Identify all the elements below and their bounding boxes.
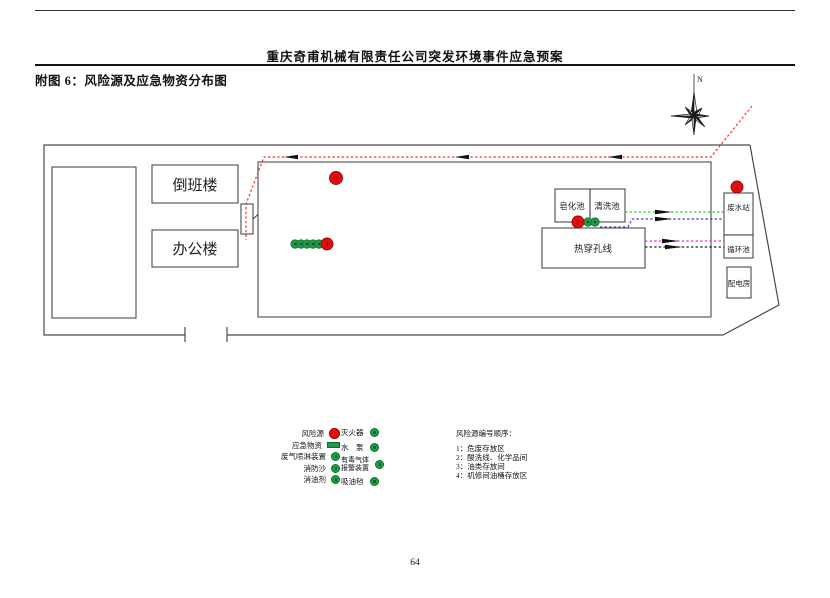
legend-label: 消防沙 xyxy=(304,463,327,474)
fire-sand-marker-icon xyxy=(331,464,340,473)
legend-item: 风险源 xyxy=(262,429,340,438)
risk-dot-number: 2 xyxy=(576,220,579,227)
legend-item: 有毒气体 报警装置 xyxy=(341,456,384,472)
extinguisher-marker-icon xyxy=(370,428,379,437)
risk-source-marker-icon xyxy=(329,428,340,439)
risk-list-item: 4：机修间油桶存放区 xyxy=(456,471,527,480)
supply-dot-mark xyxy=(300,243,303,246)
risk-dot-number: 1 xyxy=(334,176,337,183)
supply-dot-mark xyxy=(312,243,315,246)
legend-label-line1: 有毒气体 xyxy=(341,456,369,464)
legend-label: 应急物资 xyxy=(292,440,322,451)
legend-label: 吸油毡 xyxy=(341,476,364,487)
document-page: 重庆奇甫机械有限责任公司突发环境事件应急预案 附图 6：风险源及应急物资分布图 … xyxy=(0,0,830,598)
hot-piercing-line-label: 热穿孔线 xyxy=(574,243,613,255)
route-arrow-left-2 xyxy=(455,155,469,160)
supply-dot-row xyxy=(291,240,323,248)
legend-label: 水 泵 xyxy=(341,442,364,453)
legend-left-column: 风险源 应急物资 废气喷淋装置 消防沙 消油剂 xyxy=(262,429,340,487)
spray-device-marker-icon xyxy=(331,452,340,461)
emergency-supply-marker-icon xyxy=(327,442,340,448)
oil-felt-marker-icon xyxy=(370,477,379,486)
shift-building-label: 倒班楼 xyxy=(172,177,217,194)
legend-label: 风险源 xyxy=(302,428,325,439)
legend-right-column: 灭火器 水 泵 有毒气体 报警装置 吸油毡 xyxy=(341,427,384,490)
supply-dot-mark xyxy=(294,243,297,246)
legend-label-line2: 报警装置 xyxy=(341,464,369,472)
saponification-pool-label: 皂化池 xyxy=(559,201,585,211)
wastewater-station-box xyxy=(724,193,753,235)
gas-alarm-marker-icon xyxy=(375,460,384,469)
route-arrow-left-1 xyxy=(284,155,298,160)
risk-dot-number: 3 xyxy=(325,242,328,249)
office-building-label: 办公楼 xyxy=(172,241,217,258)
legend-item: 废气喷淋装置 xyxy=(262,452,340,461)
cleaning-pool-label: 清洗池 xyxy=(594,201,620,211)
legend-item: 消防沙 xyxy=(262,464,340,473)
oil-dispersant-marker-icon xyxy=(331,475,340,484)
legend-label: 灭火器 xyxy=(341,427,364,438)
supply-dot-mark xyxy=(587,221,590,224)
circulation-pool-label: 循环池 xyxy=(727,244,750,254)
left-building xyxy=(52,167,136,318)
site-plan-diagram: 倒班楼 办公楼 生化池 皂化池 清洗池 热穿孔线 废水站 循环池 配电房 xyxy=(0,0,830,598)
supply-dot-mark xyxy=(306,243,309,246)
legend-item: 吸油毡 xyxy=(341,476,384,487)
legend-item: 应急物资 xyxy=(262,441,340,450)
legend-label: 有毒气体 报警装置 xyxy=(341,456,369,472)
risk-list-item: 1：危废存放区 xyxy=(456,444,527,453)
risk-list-title: 风险源编号顺序： xyxy=(456,429,527,438)
compass-rose: N xyxy=(671,74,709,135)
page-number: 64 xyxy=(0,558,830,568)
route-arrow-left-3 xyxy=(608,155,622,160)
legend-item: 灭火器 xyxy=(341,427,384,438)
risk-list-item: 3：油类存放间 xyxy=(456,462,527,471)
compass-north-label: N xyxy=(697,75,703,84)
legend-label: 废气喷淋装置 xyxy=(281,451,326,462)
wastewater-station-label: 废水站 xyxy=(727,202,750,212)
supply-dot-pair xyxy=(584,218,599,226)
legend-item: 水 泵 xyxy=(341,442,384,453)
risk-source-numbering: 风险源编号顺序： 1：危废存放区 2：酸洗线、化学品间 3：油类存放间 4：机修… xyxy=(456,429,527,480)
supply-dot-mark xyxy=(594,221,597,224)
biochemical-pool-box xyxy=(241,204,253,234)
legend-item: 消油剂 xyxy=(262,475,340,484)
risk-list-item: 2：酸洗线、化学品间 xyxy=(456,453,527,462)
water-pump-marker-icon xyxy=(370,443,379,452)
legend-label: 消油剂 xyxy=(304,474,327,485)
supply-dot-mark xyxy=(318,243,321,246)
power-room-label: 配电房 xyxy=(728,278,751,288)
